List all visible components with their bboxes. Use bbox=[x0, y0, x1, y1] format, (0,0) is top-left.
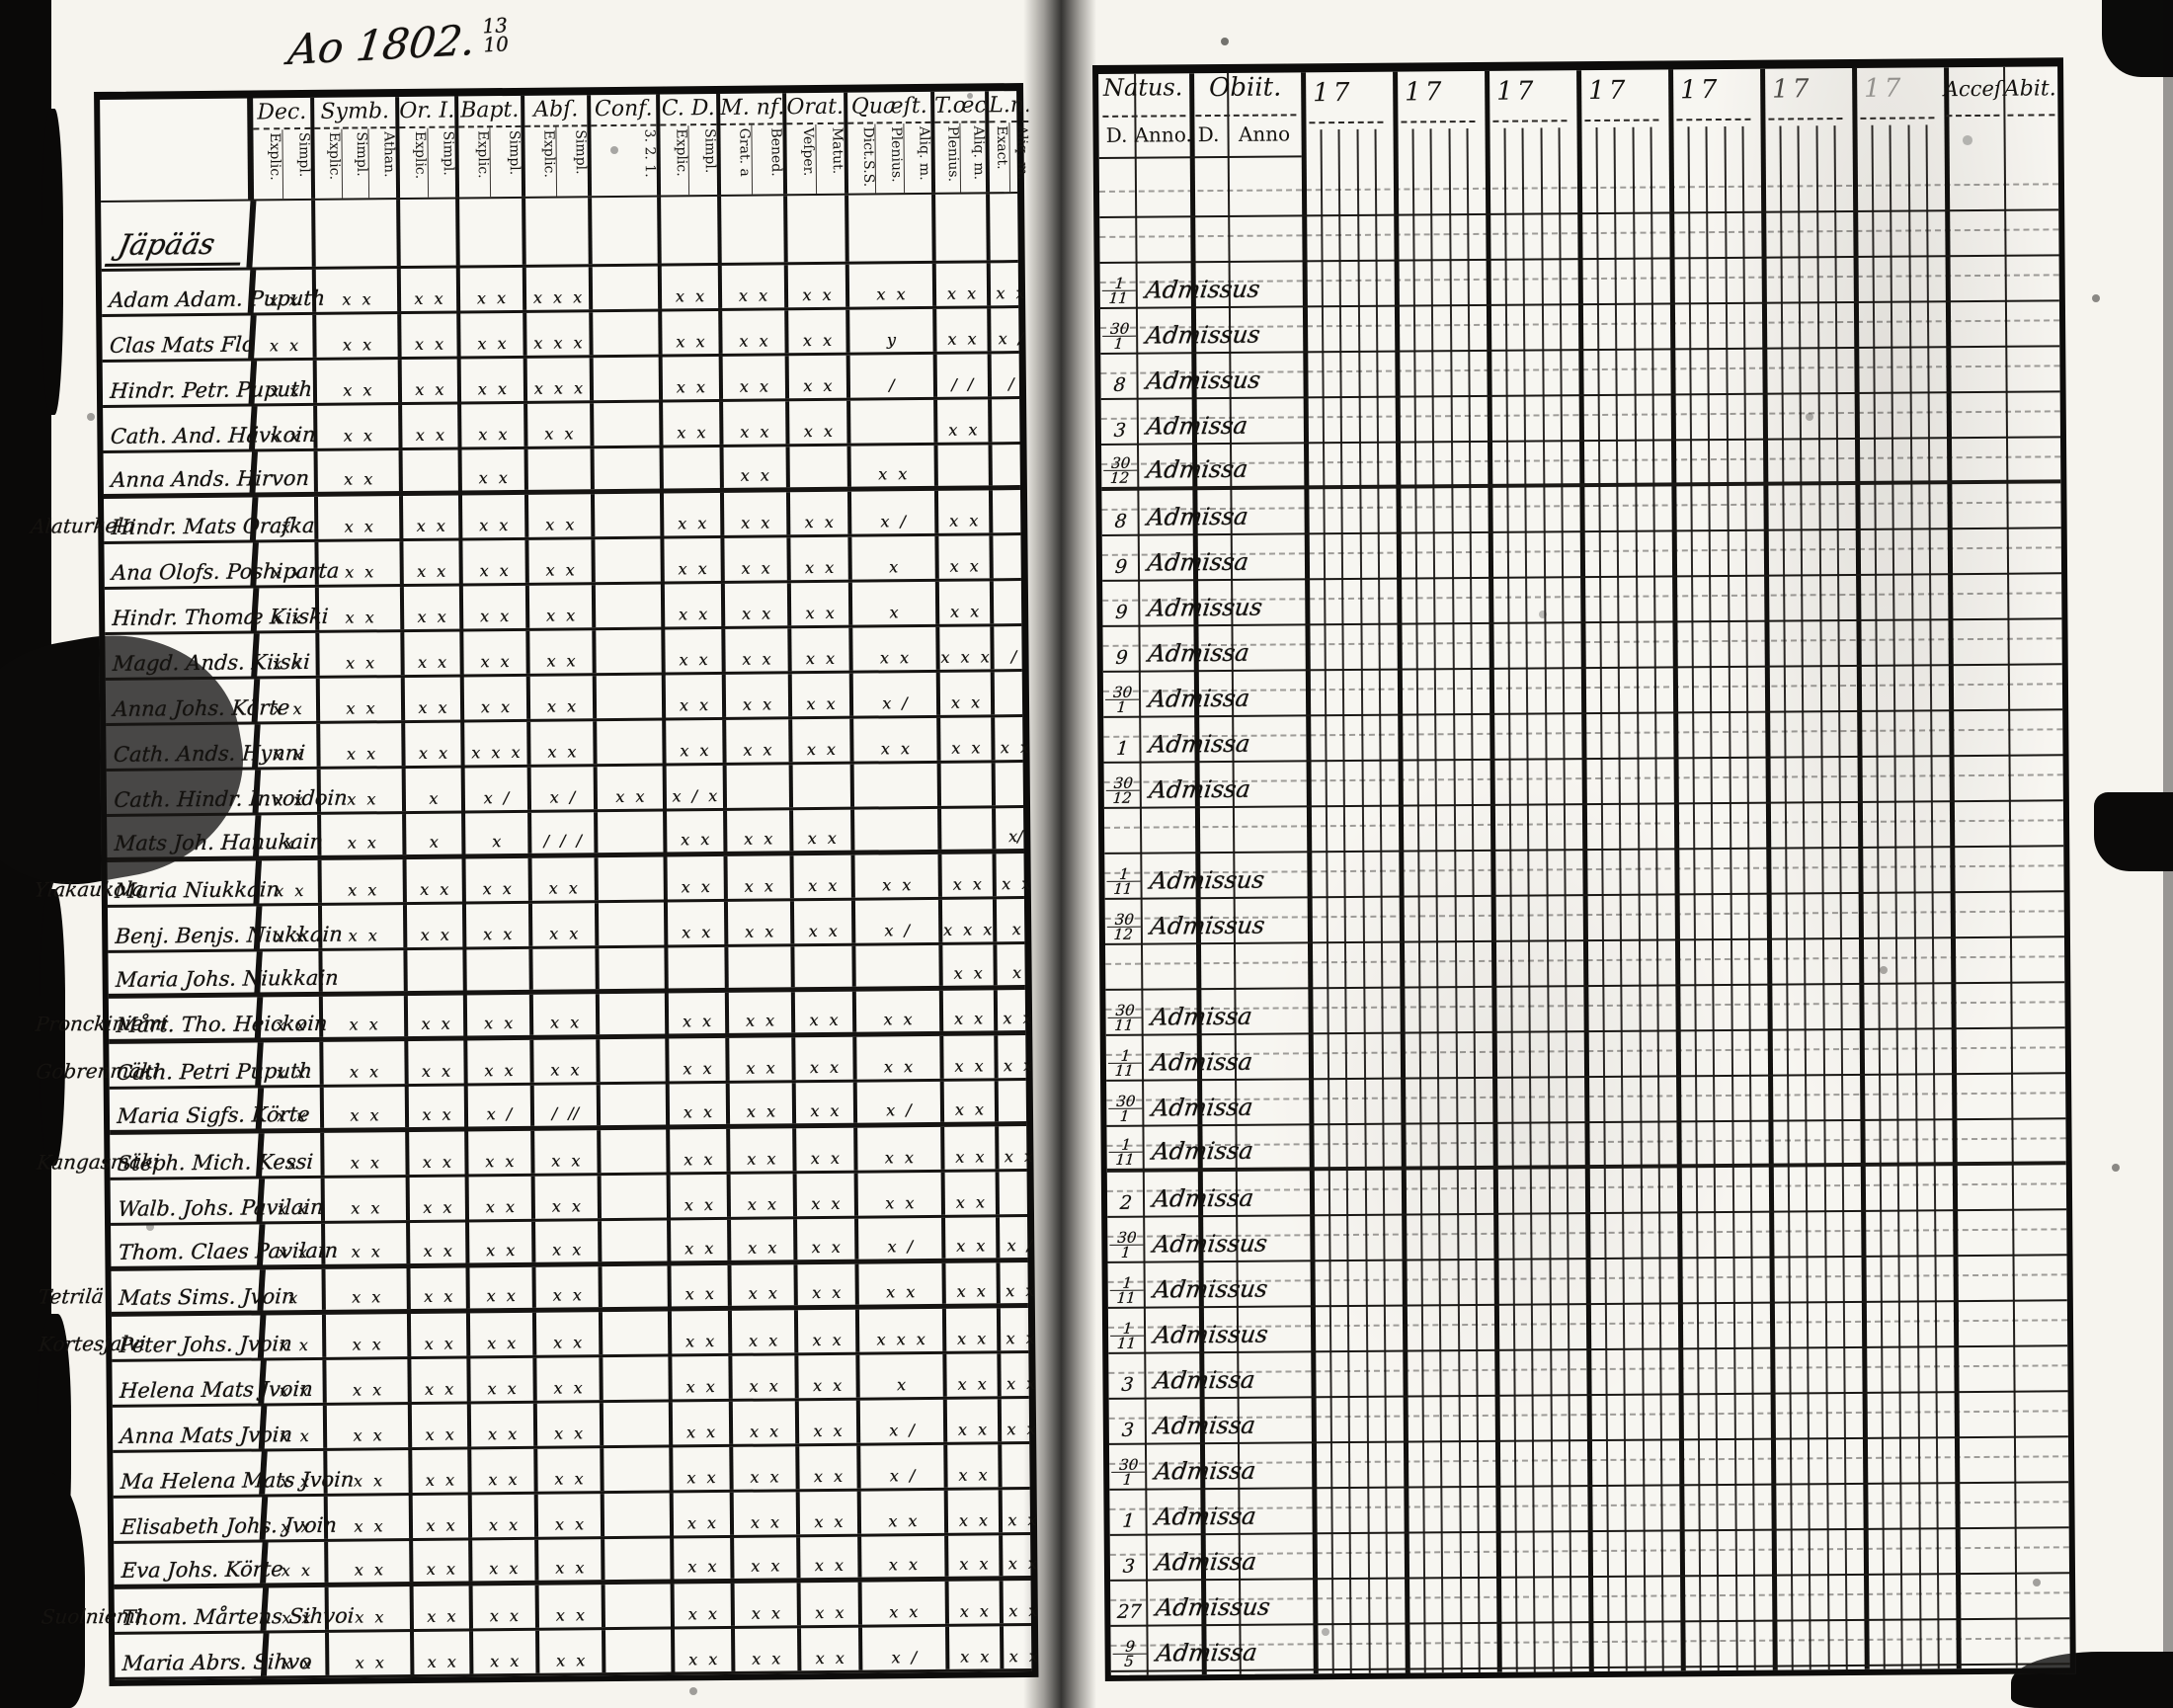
mark-cell: x x bbox=[535, 1221, 602, 1262]
mark-cell: x x bbox=[469, 1267, 535, 1309]
mark-cell: x x bbox=[788, 310, 849, 354]
mark-cell: x x bbox=[411, 1358, 470, 1402]
mark-cell bbox=[603, 1356, 672, 1400]
table-row: 301Admissus1803. bbox=[1100, 301, 2059, 355]
natus-anno-label: Anno. bbox=[1134, 122, 1189, 146]
mark-cell: x x bbox=[801, 1628, 862, 1671]
row-date: 1 bbox=[1105, 738, 1141, 760]
mark-cell: x x bbox=[671, 1265, 731, 1307]
mark-cell: x x bbox=[414, 1631, 473, 1674]
mark-cell bbox=[941, 808, 996, 850]
acces-underline bbox=[1946, 115, 1999, 117]
mark-cell: x x bbox=[473, 1586, 539, 1629]
mark-cell bbox=[790, 447, 851, 488]
mark-cell: x x bbox=[1004, 1626, 1043, 1668]
mark-cell: x x bbox=[948, 1535, 1003, 1577]
mark-cell bbox=[664, 447, 724, 489]
mark-cell: x x bbox=[861, 1491, 948, 1534]
mark-cell: x x bbox=[662, 266, 722, 309]
mark-cell: x x bbox=[460, 268, 526, 311]
mark-cell: x x bbox=[462, 449, 528, 491]
mark-cell bbox=[600, 1038, 669, 1082]
mark-cell: x x bbox=[317, 360, 402, 403]
mark-cell: x / bbox=[857, 1082, 944, 1123]
column-sublabels: Explic.Simpl. bbox=[524, 126, 588, 197]
mark-cell: x x bbox=[669, 1038, 729, 1082]
right-page-table: Natus. Obiit. D. Anno. D. Anno Acceſ Abi… bbox=[1092, 57, 2076, 1681]
mark-cell: x x bbox=[413, 1540, 472, 1582]
year-group-header: 17 bbox=[1496, 76, 1537, 106]
table-row: 9Admissa bbox=[1102, 529, 2061, 582]
row-date: 301 bbox=[1107, 1095, 1143, 1123]
mark-cell bbox=[315, 200, 401, 267]
table-row: 9Admissus bbox=[1102, 574, 2061, 627]
mark-cell: x x bbox=[321, 814, 406, 855]
mark-cell: x x bbox=[528, 494, 595, 537]
mark-cell: x x bbox=[792, 719, 853, 763]
mark-cell: x x bbox=[799, 1446, 860, 1490]
mark-cell bbox=[668, 947, 728, 989]
mark-cell bbox=[1002, 1444, 1041, 1487]
admission-note: Admissa bbox=[1145, 455, 1249, 484]
row-date: 9 bbox=[1103, 556, 1139, 578]
mark-cell: x x bbox=[319, 587, 404, 630]
date-month: 12 bbox=[1106, 928, 1141, 941]
mark-cell bbox=[400, 199, 460, 266]
mark-cell: x x bbox=[664, 538, 724, 582]
sub-column-label: Explic. bbox=[458, 127, 491, 197]
column-sublabels: Grat. aBened. bbox=[720, 124, 783, 195]
mark-cell: x x bbox=[729, 992, 795, 1033]
mark-cell bbox=[598, 811, 667, 853]
year-group-underline bbox=[1584, 119, 1658, 122]
mark-cell: x x bbox=[469, 1177, 535, 1220]
date-month: 1 bbox=[1107, 1109, 1142, 1123]
mark-cell bbox=[602, 1220, 671, 1261]
mark-cell: x x bbox=[670, 1084, 730, 1125]
row-date: 8 bbox=[1103, 511, 1139, 532]
table-row bbox=[1105, 937, 2064, 991]
mark-cell: x x bbox=[937, 399, 992, 443]
admission-note: Admissa bbox=[1147, 685, 1251, 713]
mark-cell: x x bbox=[858, 1263, 945, 1305]
mark-cell bbox=[597, 721, 666, 765]
mark-cell bbox=[604, 1493, 674, 1536]
mark-cell: x x bbox=[938, 535, 993, 579]
person-name: Walb. Johs. Pavilain bbox=[110, 1179, 266, 1223]
mark-cell: x x bbox=[537, 1403, 604, 1446]
sub-column-label: Plenius. bbox=[876, 123, 905, 193]
mark-cell: x x bbox=[947, 1399, 1002, 1442]
mark-cell bbox=[994, 581, 1033, 623]
mark-cell: x x bbox=[800, 1537, 861, 1579]
mark-cell bbox=[602, 1265, 671, 1307]
mark-cell: x x bbox=[674, 1538, 734, 1580]
mark-cell: x x bbox=[533, 994, 600, 1035]
mark-cell: x x x bbox=[526, 267, 593, 310]
mark-cell: x x bbox=[402, 359, 461, 402]
mark-cell: x x bbox=[945, 1262, 1000, 1304]
year-group-header: 17 bbox=[1313, 78, 1353, 108]
mark-cell bbox=[466, 949, 532, 991]
mark-cell bbox=[596, 630, 665, 674]
mark-cell bbox=[992, 399, 1031, 442]
mark-cell: x x bbox=[472, 1540, 538, 1582]
mark-cell: x / bbox=[991, 308, 1030, 351]
person-name: Thom. Claes Pavilain bbox=[110, 1224, 265, 1266]
mark-cell: x x bbox=[791, 628, 852, 672]
mark-cell bbox=[605, 1584, 675, 1627]
mark-cell: x x bbox=[675, 1584, 735, 1627]
mark-cell: x / bbox=[853, 673, 940, 716]
mark-cell: x x bbox=[325, 1268, 410, 1310]
mark-cell: x x bbox=[471, 1449, 537, 1493]
mark-cell: x x bbox=[1002, 1399, 1041, 1441]
sub-column-label: Simpl. bbox=[688, 125, 717, 195]
left-table-header: Dec.Explic.Simpl.Symb.Explic.Simpl.Athan… bbox=[100, 91, 1017, 203]
mark-cell: x x bbox=[733, 1446, 799, 1490]
mark-cell: / / / bbox=[531, 812, 598, 854]
mark-cell: x x bbox=[675, 1629, 735, 1672]
mark-cell bbox=[727, 765, 793, 808]
mark-cell: x x bbox=[324, 1087, 409, 1128]
mark-cell: x x bbox=[856, 1036, 943, 1080]
mark-cell: x x bbox=[319, 632, 404, 676]
mark-cell: x x bbox=[673, 1447, 733, 1491]
date-month: 11 bbox=[1105, 882, 1140, 896]
mark-cell bbox=[794, 946, 855, 988]
mark-cell: x x bbox=[731, 1219, 797, 1261]
mark-cell: x x bbox=[467, 995, 533, 1036]
mark-cell: x x bbox=[796, 1128, 857, 1172]
mark-cell: x x bbox=[1004, 1581, 1043, 1623]
mark-cell: x x bbox=[728, 901, 794, 944]
row-date: 9 bbox=[1104, 647, 1140, 669]
mark-cell: x x bbox=[734, 1492, 800, 1535]
sub-column-label: Plenius. bbox=[934, 123, 961, 193]
mark-cell: x x bbox=[730, 1128, 796, 1172]
mark-cell: x x bbox=[326, 1314, 411, 1357]
obiit-underline bbox=[1195, 114, 1296, 117]
date-month: 1 bbox=[1101, 337, 1136, 351]
mark-cell: x x bbox=[949, 1581, 1004, 1624]
mark-cell: x x bbox=[724, 537, 790, 581]
sub-column-label: Simpl. bbox=[342, 128, 369, 198]
sub-column-label: Bened. bbox=[752, 124, 783, 194]
mark-cell: x x bbox=[669, 993, 729, 1034]
mark-cell: x x bbox=[322, 859, 407, 903]
mark-cell: x x bbox=[995, 717, 1034, 760]
mark-cell: x x bbox=[727, 810, 793, 852]
mark-cell: x x bbox=[528, 539, 595, 583]
mark-cell: x x x bbox=[464, 722, 530, 766]
mark-cell: x x bbox=[674, 1493, 734, 1536]
row-date: 111 bbox=[1107, 1049, 1143, 1078]
admission-note: Admissa bbox=[1150, 1003, 1254, 1031]
book-edge-right-bar bbox=[2094, 792, 2173, 871]
mark-cell: x x bbox=[1001, 1353, 1040, 1396]
mark-cell: x / bbox=[862, 1627, 949, 1670]
mark-cell bbox=[403, 449, 462, 491]
mark-cell: x x bbox=[735, 1628, 801, 1671]
mark-cell: x x bbox=[853, 718, 940, 762]
mark-cell: x x bbox=[851, 446, 938, 487]
mark-cell: x x bbox=[316, 269, 401, 312]
mark-cell: x x bbox=[733, 1401, 799, 1444]
mark-cell: x x bbox=[793, 855, 854, 899]
mark-cell: x x bbox=[797, 1264, 858, 1306]
mark-cell: x x bbox=[410, 1177, 469, 1220]
mark-cell: x x bbox=[410, 1222, 469, 1263]
row-date: 111 bbox=[1107, 1138, 1143, 1167]
person-name: Cath. And. Hävkoin bbox=[102, 406, 258, 450]
mark-cell bbox=[601, 1129, 670, 1173]
mark-cell: x x bbox=[939, 581, 994, 624]
mark-cell bbox=[597, 676, 666, 719]
mark-cell: x x bbox=[849, 264, 936, 307]
sub-column-label: Explic. bbox=[253, 129, 282, 199]
mark-cell: / bbox=[850, 355, 937, 398]
mark-cell: x bbox=[859, 1354, 946, 1398]
row-date: 3 bbox=[1111, 1556, 1147, 1578]
mark-cell bbox=[599, 856, 668, 900]
sub-column-label: 3. 2. 1. bbox=[591, 126, 657, 197]
mark-cell: x x bbox=[414, 1586, 473, 1629]
table-row: 3011Admissa bbox=[1105, 983, 2064, 1036]
mark-cell: x x bbox=[726, 719, 792, 763]
column-label: Orat. bbox=[786, 93, 844, 125]
mark-cell: x x bbox=[672, 1311, 732, 1354]
mark-cell: x x bbox=[861, 1536, 948, 1578]
mark-cell: x x bbox=[862, 1582, 949, 1625]
mark-cell bbox=[595, 494, 664, 537]
mark-cell: x x bbox=[731, 1264, 797, 1306]
mark-cell: x x bbox=[668, 902, 728, 945]
mark-cell: x x bbox=[1000, 1262, 1039, 1303]
mark-cell: x x bbox=[724, 492, 790, 535]
year-group-header: 17 bbox=[1405, 77, 1445, 107]
mark-cell: x x bbox=[401, 313, 460, 357]
mark-cell bbox=[532, 948, 599, 990]
mark-cell: x x bbox=[722, 310, 788, 354]
mark-cell bbox=[595, 448, 664, 490]
mark-cell: x x bbox=[530, 676, 597, 719]
column-sublabels: Explic.Simpl. bbox=[660, 125, 717, 196]
mark-cell: x x bbox=[797, 1219, 858, 1261]
mark-cell bbox=[594, 358, 663, 401]
mark-cell: x x bbox=[789, 356, 850, 399]
mark-cell: x x bbox=[944, 1126, 999, 1170]
mark-cell: x x bbox=[665, 629, 725, 673]
column-label: Quæſt. bbox=[847, 92, 930, 124]
left-header-columns: Dec.Explic.Simpl.Symb.Explic.Simpl.Athan… bbox=[253, 91, 1029, 200]
row-date: 8 bbox=[1102, 374, 1138, 396]
mark-cell: x x bbox=[795, 1037, 856, 1081]
mark-cell bbox=[525, 198, 593, 265]
sub-column-label: Aliq. m. bbox=[904, 123, 931, 193]
admission-note: Admissa bbox=[1146, 548, 1250, 577]
village-margin-annotation: Suolniemi bbox=[40, 1604, 143, 1629]
row-date: 111 bbox=[1105, 867, 1141, 896]
mark-cell bbox=[990, 194, 1030, 260]
column-sublabels: Explic.Simpl. bbox=[399, 128, 455, 199]
person-name: Anna Mats Jvoin bbox=[112, 1406, 268, 1450]
person-name: Benj. Benjs. Niukkain bbox=[107, 906, 263, 950]
admission-note: Admissa bbox=[1148, 730, 1252, 759]
sub-column-label: Explic. bbox=[524, 127, 557, 197]
date-month: 1 bbox=[1108, 1246, 1143, 1260]
table-row: Maria Abrs. Sihvox xx xx xx xx xx xx xx … bbox=[115, 1626, 1031, 1680]
mark-cell: x x bbox=[463, 631, 529, 675]
admission-note: Admissa bbox=[1154, 1548, 1258, 1577]
column-sublabels: Explic.Simpl.Athan. bbox=[314, 128, 396, 199]
mark-cell bbox=[1000, 1172, 1039, 1214]
table-row: 3012Admissa bbox=[1101, 438, 2060, 491]
mark-cell: x x bbox=[538, 1494, 604, 1537]
mark-cell: x x bbox=[947, 1444, 1002, 1488]
mark-cell: x x bbox=[323, 996, 408, 1037]
row-date: 1 bbox=[1111, 1510, 1147, 1532]
mark-cell bbox=[995, 672, 1034, 714]
table-row: 111Admissa bbox=[1106, 1119, 2065, 1173]
year-title: Ao 1802. bbox=[285, 16, 478, 74]
admission-note: Admissa bbox=[1153, 1457, 1257, 1486]
mark-cell: x x bbox=[996, 854, 1035, 896]
row-date: 3 bbox=[1110, 1420, 1146, 1441]
mark-cell: x x bbox=[470, 1313, 536, 1356]
mark-cell: x x bbox=[730, 1083, 796, 1124]
year-group-header: 17 bbox=[1588, 76, 1629, 106]
mark-cell bbox=[604, 1447, 673, 1491]
date-month: 1 bbox=[1104, 700, 1139, 714]
admission-note: Admissus bbox=[1152, 1275, 1269, 1304]
mark-cell bbox=[600, 993, 669, 1034]
person-name: Maria Abrs. Sihvo bbox=[114, 1633, 270, 1677]
row-date: 2 bbox=[1108, 1192, 1144, 1214]
mark-cell: x x bbox=[945, 1172, 1000, 1215]
mark-cell: x x bbox=[1001, 1308, 1040, 1350]
person-name: Anna Ands. Hirvon bbox=[103, 451, 258, 494]
mark-cell bbox=[993, 535, 1032, 578]
mark-cell bbox=[935, 194, 991, 261]
person-name: Anna Johs. Körte bbox=[105, 679, 261, 723]
acces-column-header: Acceſ bbox=[1943, 77, 2002, 101]
mark-cell bbox=[999, 1081, 1038, 1121]
mark-cell: / bbox=[994, 626, 1033, 669]
mark-cell: x x bbox=[943, 990, 998, 1031]
mark-cell: x x bbox=[723, 401, 789, 445]
mark-cell: x / x bbox=[667, 766, 727, 809]
person-name: Hindr. Thomæ Kiiski bbox=[104, 588, 260, 632]
mark-cell: x bbox=[852, 582, 939, 625]
year-group-underline bbox=[1676, 119, 1750, 122]
village-margin-annotation: Kortesjalvi bbox=[38, 1332, 147, 1356]
mark-cell bbox=[661, 197, 722, 264]
column-label: Or. I. bbox=[399, 97, 454, 129]
mark-cell: x x bbox=[329, 1632, 414, 1675]
right-rows: 111Admissus301Admissus1803.8Admissus3Adm… bbox=[1099, 165, 2070, 1672]
mark-cell: x x bbox=[467, 1040, 533, 1084]
admission-note: Admissus bbox=[1152, 1230, 1269, 1259]
mark-cell: x x bbox=[1003, 1535, 1042, 1576]
mark-cell: x x bbox=[404, 631, 463, 675]
mark-cell: x x bbox=[790, 537, 851, 581]
mark-cell: x x x bbox=[942, 899, 997, 942]
mark-cell: x / bbox=[860, 1445, 947, 1489]
table-row: 3Admissa1807. bbox=[1110, 1528, 2069, 1582]
section-row: Jäpääs bbox=[101, 194, 1018, 272]
mark-cell: x / bbox=[860, 1400, 947, 1443]
mark-cell: x x bbox=[792, 674, 853, 717]
column-sublabels: Veſper.Matut. bbox=[786, 124, 845, 195]
mark-cell: x x bbox=[468, 1131, 534, 1175]
mark-cell: x x bbox=[991, 263, 1030, 305]
table-row: 111Admissus bbox=[1108, 1301, 2067, 1354]
column-sublabels: Exact.Aliq. m. bbox=[989, 122, 1029, 192]
mark-cell: x x bbox=[401, 268, 460, 311]
mark-cell: x x bbox=[793, 810, 854, 852]
table-row: 27Admissus1803. bbox=[1110, 1574, 2069, 1627]
person-name: Cath. Hindr. Invoidoin bbox=[106, 770, 262, 814]
obiit-header: Obiit. bbox=[1191, 72, 1299, 103]
mark-cell: x x bbox=[732, 1355, 798, 1399]
row-date: 301 bbox=[1108, 1231, 1144, 1260]
table-row: 2Admissa bbox=[1107, 1165, 2066, 1218]
mark-cell: x x bbox=[461, 359, 527, 402]
row-date: 111 bbox=[1109, 1276, 1145, 1305]
mark-cell: x x bbox=[405, 722, 464, 766]
mark-cell: x x bbox=[462, 495, 528, 538]
column-group-9: Orat.Veſper.Matut. bbox=[786, 93, 848, 195]
row-date: 111 bbox=[1101, 277, 1137, 305]
mark-cell: x x bbox=[402, 404, 461, 447]
date-month: 12 bbox=[1105, 791, 1140, 805]
mark-cell bbox=[848, 195, 936, 262]
sub-column-label: Aliq. m. bbox=[960, 122, 986, 192]
mark-cell: x x bbox=[940, 672, 995, 715]
mark-cell: x x bbox=[324, 1132, 409, 1176]
mark-cell: x / bbox=[851, 491, 938, 534]
mark-cell: / // bbox=[534, 1085, 601, 1126]
mark-cell: x x bbox=[534, 1130, 601, 1174]
mark-cell bbox=[601, 1084, 670, 1125]
mark-cell bbox=[850, 400, 937, 444]
mark-cell: x x bbox=[470, 1358, 536, 1402]
mark-cell bbox=[593, 267, 662, 310]
mark-cell bbox=[993, 490, 1032, 532]
mark-cell: x x bbox=[328, 1541, 413, 1583]
mark-cell: x x bbox=[798, 1355, 859, 1399]
mark-cell: x x bbox=[942, 944, 997, 986]
table-row: 301Admissa1803. bbox=[1103, 665, 2062, 718]
row-date: 3 bbox=[1102, 420, 1138, 442]
mark-cell bbox=[605, 1629, 675, 1672]
mark-cell: x x bbox=[949, 1626, 1004, 1669]
mark-cell: x x bbox=[944, 1081, 999, 1122]
mark-cell bbox=[996, 763, 1035, 805]
column-group-6: Conf.3. 2. 1. bbox=[591, 95, 661, 197]
mark-cell: x x bbox=[535, 1176, 602, 1219]
mark-cell: x x bbox=[795, 992, 856, 1033]
mark-cell: x x bbox=[998, 1035, 1037, 1078]
mark-cell: x x bbox=[464, 677, 530, 720]
column-group-2: Symb.Explic.Simpl.Athan. bbox=[314, 97, 400, 199]
table-row: 8Admissus bbox=[1100, 347, 2059, 400]
admission-note: Admissa bbox=[1154, 1503, 1258, 1531]
mark-cell: x x bbox=[405, 677, 464, 720]
mark-cell: x x bbox=[403, 495, 462, 538]
mark-cell bbox=[599, 947, 668, 989]
